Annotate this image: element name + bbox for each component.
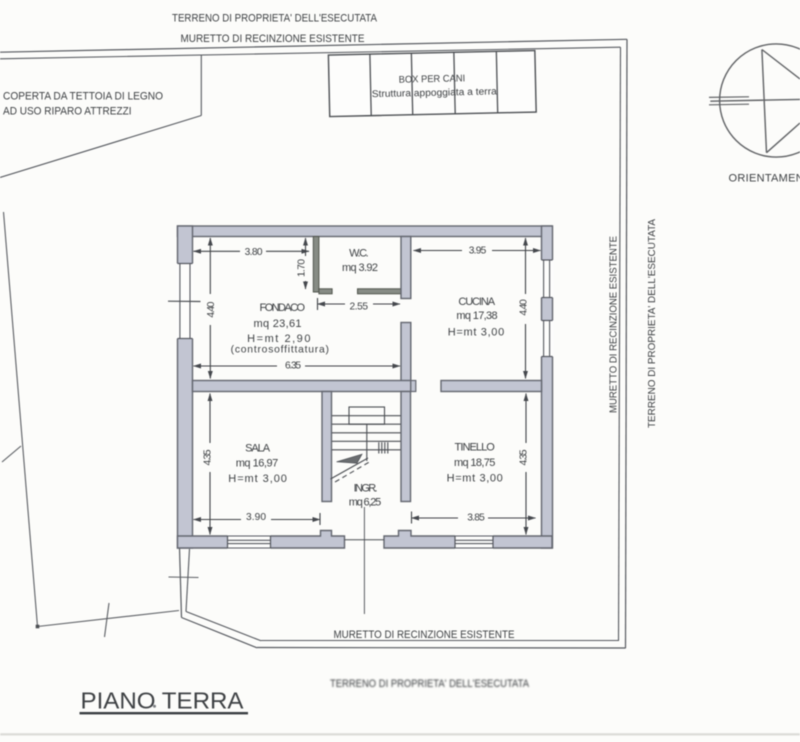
svg-text:3.95: 3.95 [469, 246, 487, 257]
svg-text:1.70: 1.70 [297, 259, 308, 277]
svg-text:TERRENO DI PROPRIETA' DELL': TERRENO DI PROPRIETA' DELL'ESECUTATA [172, 13, 377, 25]
svg-text:mq 17,38: mq 17,38 [456, 310, 497, 322]
svg-text:MURETTO DI RECINZIONE ESIST: MURETTO DI RECINZIONE ESISTENTE [608, 236, 620, 413]
svg-text:COPERTA DA TETTOIA DI LEGN: COPERTA DA TETTOIA DI LEGNO [3, 90, 163, 102]
svg-text:PIANO TERRA: PIANO TERRA [81, 687, 244, 713]
svg-text:mq 23,61: mq 23,61 [254, 318, 302, 330]
svg-text:3.90: 3.90 [246, 512, 266, 523]
svg-text:SALA: SALA [245, 442, 271, 454]
svg-text:(controsoffittatura): (controsoffittatura) [231, 345, 329, 356]
svg-text:MURETTO DI RECINZIONE ESIST: MURETTO DI RECINZIONE ESISTENTE [181, 33, 365, 45]
svg-text:6.35: 6.35 [285, 361, 301, 372]
svg-text:mq 16,97: mq 16,97 [236, 458, 279, 470]
svg-text:TERRENO DI PROPRIETA' DELL': TERRENO DI PROPRIETA' DELL'ESECUTATA [646, 219, 658, 428]
svg-text:mq 3.92: mq 3.92 [342, 262, 378, 274]
svg-text:3.85: 3.85 [467, 513, 485, 524]
svg-text:MURETTO DI RECINZIONE ESIST: MURETTO DI RECINZIONE ESISTENTE [334, 629, 515, 641]
svg-text:mq 6,25: mq 6,25 [349, 497, 382, 509]
svg-text:H=mt 3,00: H=mt 3,00 [228, 473, 287, 485]
svg-text:TINELLO: TINELLO [455, 442, 496, 454]
svg-text:4.40: 4.40 [206, 301, 217, 317]
svg-text:BOX PER CANI: BOX PER CANI [399, 73, 466, 85]
svg-text:H=mt 3,00: H=mt 3,00 [447, 473, 503, 485]
svg-text:mq 18,75: mq 18,75 [454, 457, 495, 469]
svg-text:4.40: 4.40 [519, 299, 530, 316]
svg-text:4.35: 4.35 [203, 449, 214, 465]
svg-text:FONDACO: FONDACO [260, 302, 306, 314]
svg-text:AD USO RIPARO ATTREZZI: AD USO RIPARO ATTREZZI [3, 105, 132, 117]
svg-text:W.C.: W.C. [349, 247, 369, 259]
svg-text:ORIENTAMENTO: ORIENTAMENTO [729, 173, 800, 185]
svg-text:2.55: 2.55 [350, 301, 369, 312]
svg-text:TERRENO DI PROPRIETA' DELL': TERRENO DI PROPRIETA' DELL'ESECUTATA [330, 678, 530, 690]
svg-text:INGR.: INGR. [354, 482, 378, 494]
svg-text:H=mt 3,00: H=mt 3,00 [448, 327, 504, 339]
svg-text:CUCINA: CUCINA [458, 296, 495, 308]
svg-text:4.35: 4.35 [519, 449, 530, 465]
svg-text:3.80: 3.80 [245, 247, 263, 258]
